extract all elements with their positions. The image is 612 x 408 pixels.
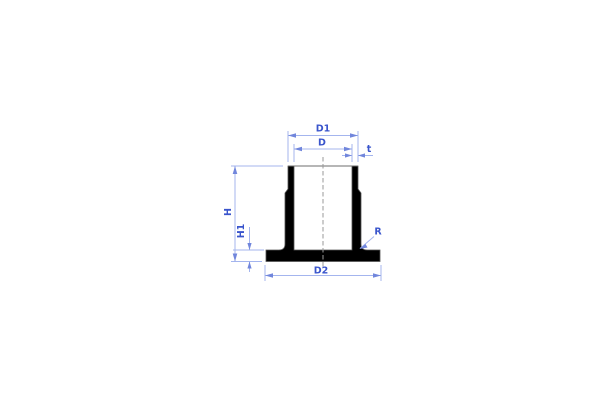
dim-label-t: t [367,144,372,155]
arrow-h1-top [247,243,251,250]
arrow-d-right [344,147,352,152]
arrow-h-top [233,166,238,174]
flange-cross-section-drawing: D1 D t H H1 D2 R [0,0,612,408]
drawing-canvas: D1 D t H H1 D2 R [0,0,612,408]
dim-label-d1: D1 [316,124,331,135]
dim-label-d: D [318,138,326,149]
dim-label-h: H [223,208,234,216]
arrow-d2-left [265,273,273,278]
arrow-t-right [358,153,365,157]
arrow-t-left [345,153,352,157]
arrow-d1-left [288,133,296,138]
arrow-h-bottom [233,254,238,262]
arrow-d1-right [350,133,358,138]
arrow-h1-bottom [247,262,251,269]
arrow-d2-right [373,273,381,278]
dim-label-h1: H1 [236,224,247,239]
arrow-d-left [294,147,302,152]
dim-label-r: R [374,227,382,238]
dim-label-d2: D2 [314,266,329,277]
